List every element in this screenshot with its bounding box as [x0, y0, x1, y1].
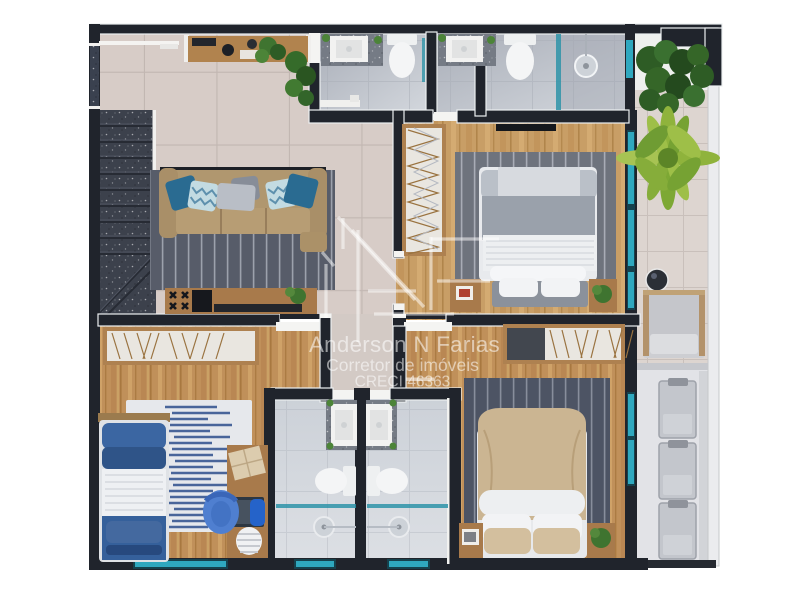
svg-text:CRECI 46363: CRECI 46363: [355, 374, 451, 391]
svg-text:Corretor de imóveis: Corretor de imóveis: [326, 355, 479, 375]
svg-text:Anderson N Farias: Anderson N Farias: [309, 332, 500, 357]
